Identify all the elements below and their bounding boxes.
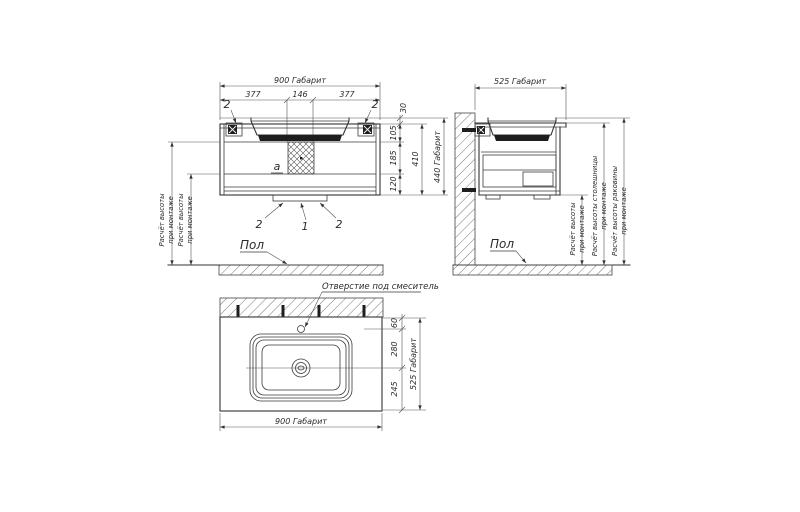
- callout-a: a: [274, 160, 281, 173]
- drawing-canvas: 900 Габарит 377 146 377: [0, 0, 800, 512]
- floor-label-front: Пол: [240, 238, 264, 252]
- wall-anchor-bottom: [462, 188, 476, 192]
- sink-outline-top: [250, 334, 352, 401]
- faucet-hole: [298, 326, 305, 333]
- callout-rail-center: 1: [302, 220, 309, 233]
- front-note1-line2: при монтаже: [167, 196, 175, 244]
- front-dim-120: 120: [389, 176, 398, 191]
- bracket-side: [475, 124, 490, 136]
- front-note1-line1: Расчёт высоты: [158, 193, 166, 247]
- side-note-countertop-line1: Расчёт высоты столешницы: [591, 155, 599, 256]
- sink-bowl-front: [251, 118, 349, 135]
- side-note-sink-line2: при монтаже: [620, 187, 628, 235]
- callout-rail-right: 2: [336, 218, 343, 231]
- wall-hatch-top: [220, 298, 383, 317]
- front-dim-105: 105: [389, 125, 398, 140]
- sink-bowl-base-front: [258, 135, 342, 141]
- front-dim-146: 146: [292, 90, 307, 99]
- front-dim-185: 185: [389, 150, 398, 165]
- callout-bracket-right: 2: [372, 98, 379, 111]
- bracket-right-front: [358, 123, 374, 136]
- sink-bowl-side: [488, 118, 556, 135]
- bracket-mark-3: [318, 305, 321, 317]
- top-dim-900-overall: 900 Габарит: [275, 417, 327, 426]
- front-dim-377-right: 377: [339, 90, 355, 99]
- floor-hatch-front: [219, 265, 383, 275]
- front-note2-line1: Расчёт высоты: [177, 193, 185, 247]
- bracket-mark-4: [363, 305, 366, 317]
- side-view: 525 Габарит: [453, 77, 630, 275]
- countertop-top: [220, 317, 382, 411]
- callout-bracket-left: 2: [224, 98, 231, 111]
- sink-bowl-base-side: [494, 135, 550, 141]
- front-note2-line2: при монтаже: [186, 196, 194, 244]
- wall-anchor-top: [462, 128, 476, 132]
- technical-drawing-vanity: 900 Габарит 377 146 377: [0, 0, 800, 512]
- side-note-mount-line1: Расчёт высоты: [569, 202, 577, 256]
- mounting-rail: [273, 195, 327, 201]
- top-dim-525-overall: 525 Габарит: [409, 338, 418, 390]
- faucet-hole-label: Отверстие под смеситель: [322, 282, 439, 292]
- bracket-mark-2: [282, 305, 285, 317]
- front-dim-overall-width: 900 Габарит: [274, 76, 326, 85]
- floor-label-side: Пол: [490, 237, 514, 251]
- side-note-mount-line2: при монтаже: [578, 205, 586, 253]
- front-dim-440-overall: 440 Габарит: [433, 131, 442, 183]
- bracket-mark-1: [237, 305, 240, 317]
- top-dim-280: 280: [390, 341, 399, 356]
- side-note-countertop-line2: при монтаже: [600, 182, 608, 230]
- side-note-sink-line1: Расчёт высоты раковины: [611, 165, 619, 256]
- side-dim-overall-depth: 525 Габарит: [494, 77, 546, 86]
- top-dim-245: 245: [390, 381, 399, 396]
- bracket-left-front: [226, 123, 242, 136]
- front-dim-377-left: 377: [245, 90, 261, 99]
- floor-hatch-side: [453, 265, 612, 275]
- front-dim-410: 410: [411, 151, 420, 166]
- callout-rail-left: 2: [256, 218, 263, 231]
- top-dim-60: 60: [390, 318, 399, 328]
- top-view: Отверстие под смеситель 60 280 245 525 Г…: [220, 282, 439, 431]
- front-dim-30: 30: [399, 103, 408, 113]
- drawer-side: [483, 155, 556, 187]
- front-view: 900 Габарит 377 146 377: [158, 76, 448, 275]
